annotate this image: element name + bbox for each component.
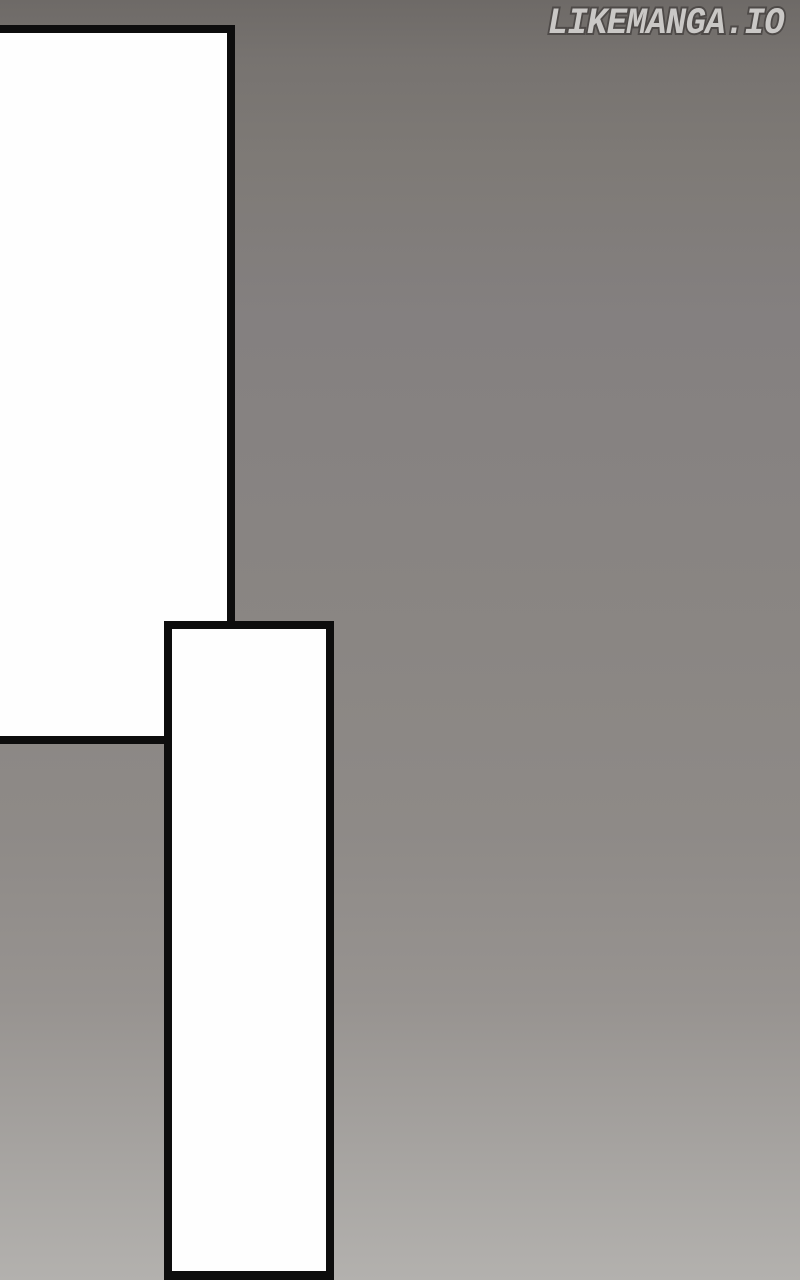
svg-text:LIKEMANGA.IO: LIKEMANGA.IO xyxy=(548,3,785,45)
